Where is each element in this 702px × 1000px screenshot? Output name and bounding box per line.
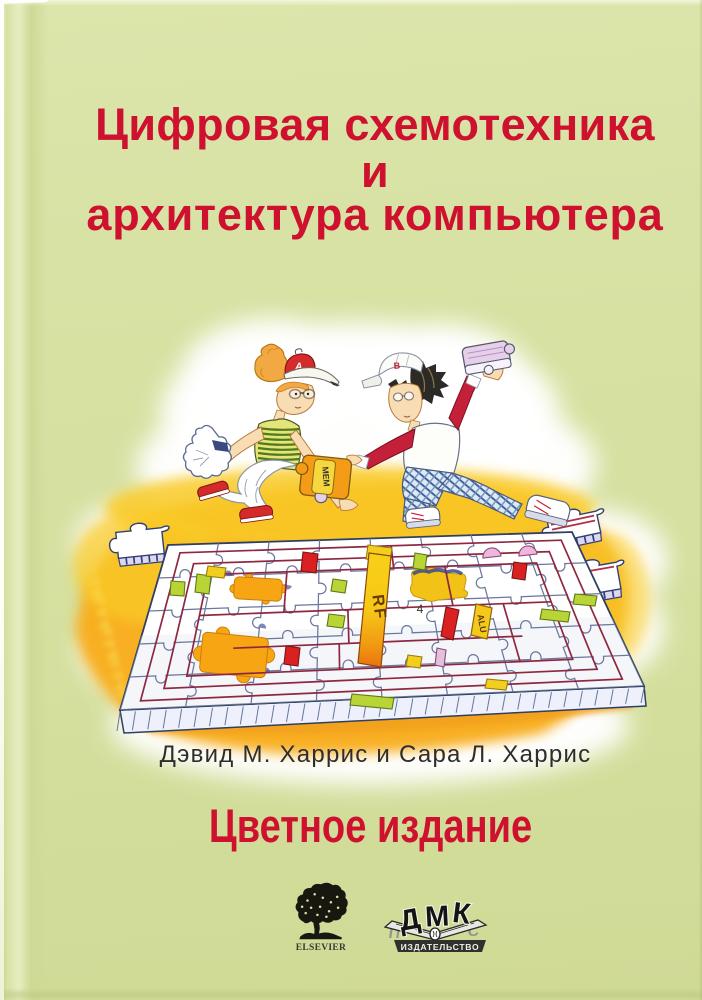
svg-text:Д: Д [397,903,423,938]
svg-text:RF: RF [368,593,389,621]
svg-text:ELSEVIER: ELSEVIER [296,943,346,953]
svg-text:М: М [424,900,450,933]
svg-text:4: 4 [417,602,424,616]
svg-text:МЕМ: МЕМ [320,466,331,486]
svg-text:ИЗДАТЕЛЬСТВО: ИЗДАТЕЛЬСТВО [401,942,480,952]
